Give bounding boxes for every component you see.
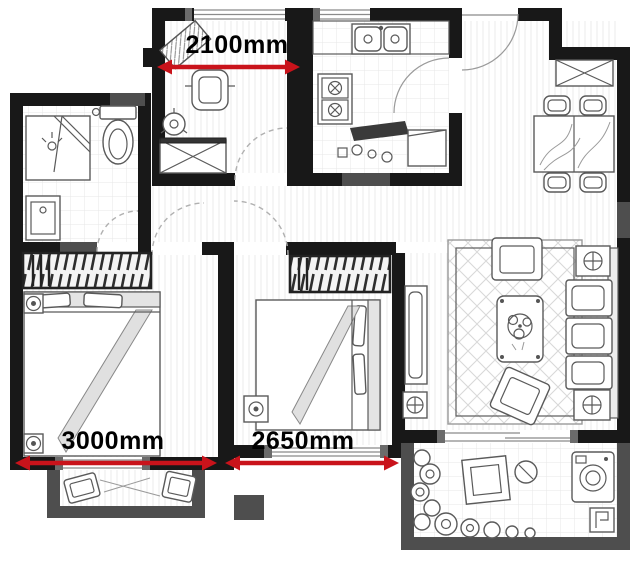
wardrobe-left-icon [23,253,151,288]
kitchen-sink-icon [352,24,410,54]
coffee-table-icon [497,296,543,362]
hallway-floor [152,186,462,242]
study-cabinet-icon [160,138,226,173]
balcony-stool-icon [515,461,537,483]
bathroom-sink-icon [26,196,60,240]
tv-cabinet-icon [405,286,427,384]
dimension-label-study: 2100mm [185,31,288,59]
shower-icon [26,116,90,180]
balcony-table-icon [462,456,510,504]
dining-table-icon [534,116,614,172]
study-top-window [192,10,285,19]
floor-plan-canvas: 2100mm 3000mm 2650mm [0,0,640,563]
stove-icon [318,74,352,124]
side-table-bottom-icon [574,390,610,420]
cushion-icon [162,471,197,503]
entry-closet-icon [556,60,613,86]
floor-drain-icon [590,508,614,532]
plant-stand-icon [403,392,427,418]
bedroom-left [23,253,160,456]
armchair-top-icon [492,238,542,280]
kitchen-cabinet-icon [408,130,446,166]
wardrobe-middle-icon [290,256,390,292]
dimension-label-bedroom-left: 3000mm [61,427,164,455]
balcony-sliding-door [445,433,578,441]
office-chair-icon [185,70,235,110]
kitchen-top-window [318,10,370,19]
side-table-top-icon [576,246,610,276]
floor-plan: 2100mm 3000mm 2650mm [0,0,640,563]
dimension-label-bedroom-middle: 2650mm [251,427,354,455]
bed-middle-icon [256,300,380,430]
washing-machine-icon [572,452,614,502]
nightstand-middle-icon [244,396,268,422]
